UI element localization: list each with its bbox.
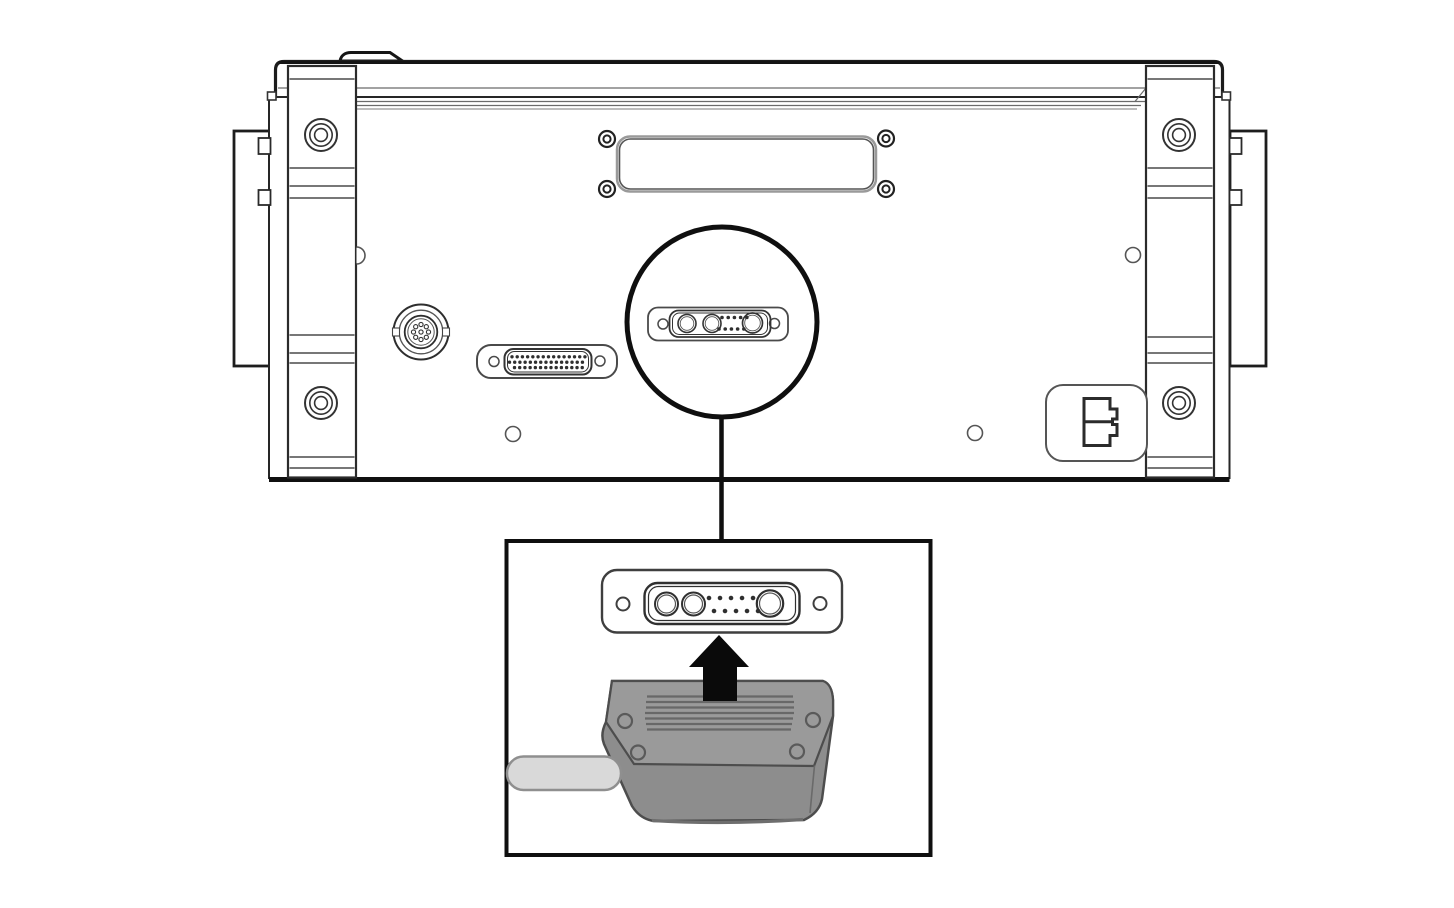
cable	[507, 757, 621, 791]
combo-connector	[648, 308, 788, 341]
dsub44-connector	[477, 345, 617, 378]
top-lid	[276, 62, 1223, 98]
left-rack-ear	[288, 66, 356, 478]
illustration-canvas	[0, 0, 1454, 908]
combo-connector-detail	[602, 570, 842, 633]
plug-grip-ribs	[645, 697, 794, 730]
right-side-panel	[1230, 131, 1266, 366]
power-inlet-connector	[1046, 385, 1147, 461]
blank-cover-plate	[617, 137, 876, 192]
lid-handle-tab	[340, 53, 403, 62]
left-side-panel	[234, 131, 270, 366]
left-lid-step	[268, 92, 277, 100]
detail-inset-box	[507, 541, 931, 855]
rear-panel-diagram	[0, 0, 1454, 908]
right-lid-step	[1222, 92, 1231, 100]
right-rack-ear	[1146, 66, 1214, 478]
